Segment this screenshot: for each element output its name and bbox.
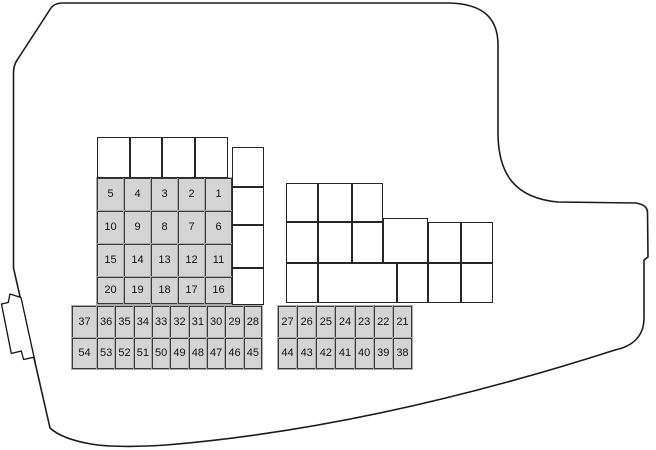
- left-top-empty-row-cell: [195, 137, 228, 178]
- right-empty-block-cell: [286, 263, 318, 303]
- fuse-26: 26: [297, 306, 316, 338]
- fuse-52: 52: [115, 338, 133, 369]
- fuse-32: 32: [170, 306, 188, 338]
- fuse-22: 22: [374, 306, 393, 338]
- fuse-49: 49: [170, 338, 188, 369]
- fuse-4: 4: [124, 178, 151, 211]
- fuse-19: 19: [124, 277, 151, 304]
- fuse-41: 41: [335, 338, 354, 369]
- right-empty-block-cell: [428, 222, 461, 263]
- fuse-21: 21: [393, 306, 412, 338]
- fuse-37: 37: [72, 306, 97, 338]
- right-empty-block-cell: [383, 218, 428, 263]
- fuse-20: 20: [97, 277, 124, 304]
- fuse-29: 29: [225, 306, 243, 338]
- fuse-24: 24: [335, 306, 354, 338]
- right-empty-block-cell: [428, 263, 461, 303]
- fuse-48: 48: [189, 338, 207, 369]
- fuse-28: 28: [244, 306, 262, 338]
- fuse-5: 5: [97, 178, 124, 211]
- fuse-15: 15: [97, 244, 124, 277]
- left-side-empty-column-cell: [232, 225, 264, 268]
- right-empty-block-cell: [318, 222, 352, 263]
- fuse-box-diagram: 5432110987615141312112019181716373635343…: [0, 0, 656, 450]
- fuse-27: 27: [278, 306, 297, 338]
- left-top-empty-row-cell: [130, 137, 163, 178]
- fuse-45: 45: [244, 338, 262, 369]
- fuse-42: 42: [316, 338, 335, 369]
- fuse-36: 36: [97, 306, 115, 338]
- fuse-40: 40: [355, 338, 374, 369]
- fuse-51: 51: [134, 338, 152, 369]
- fuse-43: 43: [297, 338, 316, 369]
- right-empty-block-cell: [461, 263, 493, 303]
- fuse-44: 44: [278, 338, 297, 369]
- fuse-14: 14: [124, 244, 151, 277]
- left-top-empty-row-cell: [97, 137, 130, 178]
- right-empty-block-cell: [397, 263, 428, 303]
- right-empty-block-cell: [286, 183, 318, 222]
- fuse-46: 46: [225, 338, 243, 369]
- left-side-empty-column-cell: [232, 187, 264, 225]
- fuse-10: 10: [97, 211, 124, 244]
- fuse-3: 3: [151, 178, 178, 211]
- fuse-31: 31: [189, 306, 207, 338]
- fuse-16: 16: [205, 277, 232, 304]
- fuse-6: 6: [205, 211, 232, 244]
- fuse-39: 39: [374, 338, 393, 369]
- fuse-1: 1: [205, 178, 232, 211]
- right-empty-block-cell: [352, 222, 383, 263]
- right-empty-block-cell: [461, 222, 493, 263]
- left-top-empty-row-cell: [162, 137, 195, 178]
- fuse-25: 25: [316, 306, 335, 338]
- fuse-35: 35: [115, 306, 133, 338]
- left-side-empty-column-cell: [232, 268, 264, 305]
- right-empty-block-cell: [352, 183, 383, 222]
- right-empty-block-cell: [318, 183, 352, 222]
- right-empty-block-cell: [318, 263, 397, 303]
- fuse-2: 2: [178, 178, 205, 211]
- fuse-53: 53: [97, 338, 115, 369]
- fuse-18: 18: [151, 277, 178, 304]
- fuse-17: 17: [178, 277, 205, 304]
- left-side-empty-column-cell: [232, 147, 264, 187]
- fuse-47: 47: [207, 338, 225, 369]
- fuse-34: 34: [134, 306, 152, 338]
- fuse-33: 33: [152, 306, 170, 338]
- fuse-12: 12: [178, 244, 205, 277]
- fuse-13: 13: [151, 244, 178, 277]
- fuse-9: 9: [124, 211, 151, 244]
- right-empty-block-cell: [286, 222, 318, 263]
- fuse-38: 38: [393, 338, 412, 369]
- fuse-30: 30: [207, 306, 225, 338]
- fuse-23: 23: [355, 306, 374, 338]
- fuse-50: 50: [152, 338, 170, 369]
- fuse-7: 7: [178, 211, 205, 244]
- fuse-8: 8: [151, 211, 178, 244]
- fuse-11: 11: [205, 244, 232, 277]
- fuse-54: 54: [72, 338, 97, 369]
